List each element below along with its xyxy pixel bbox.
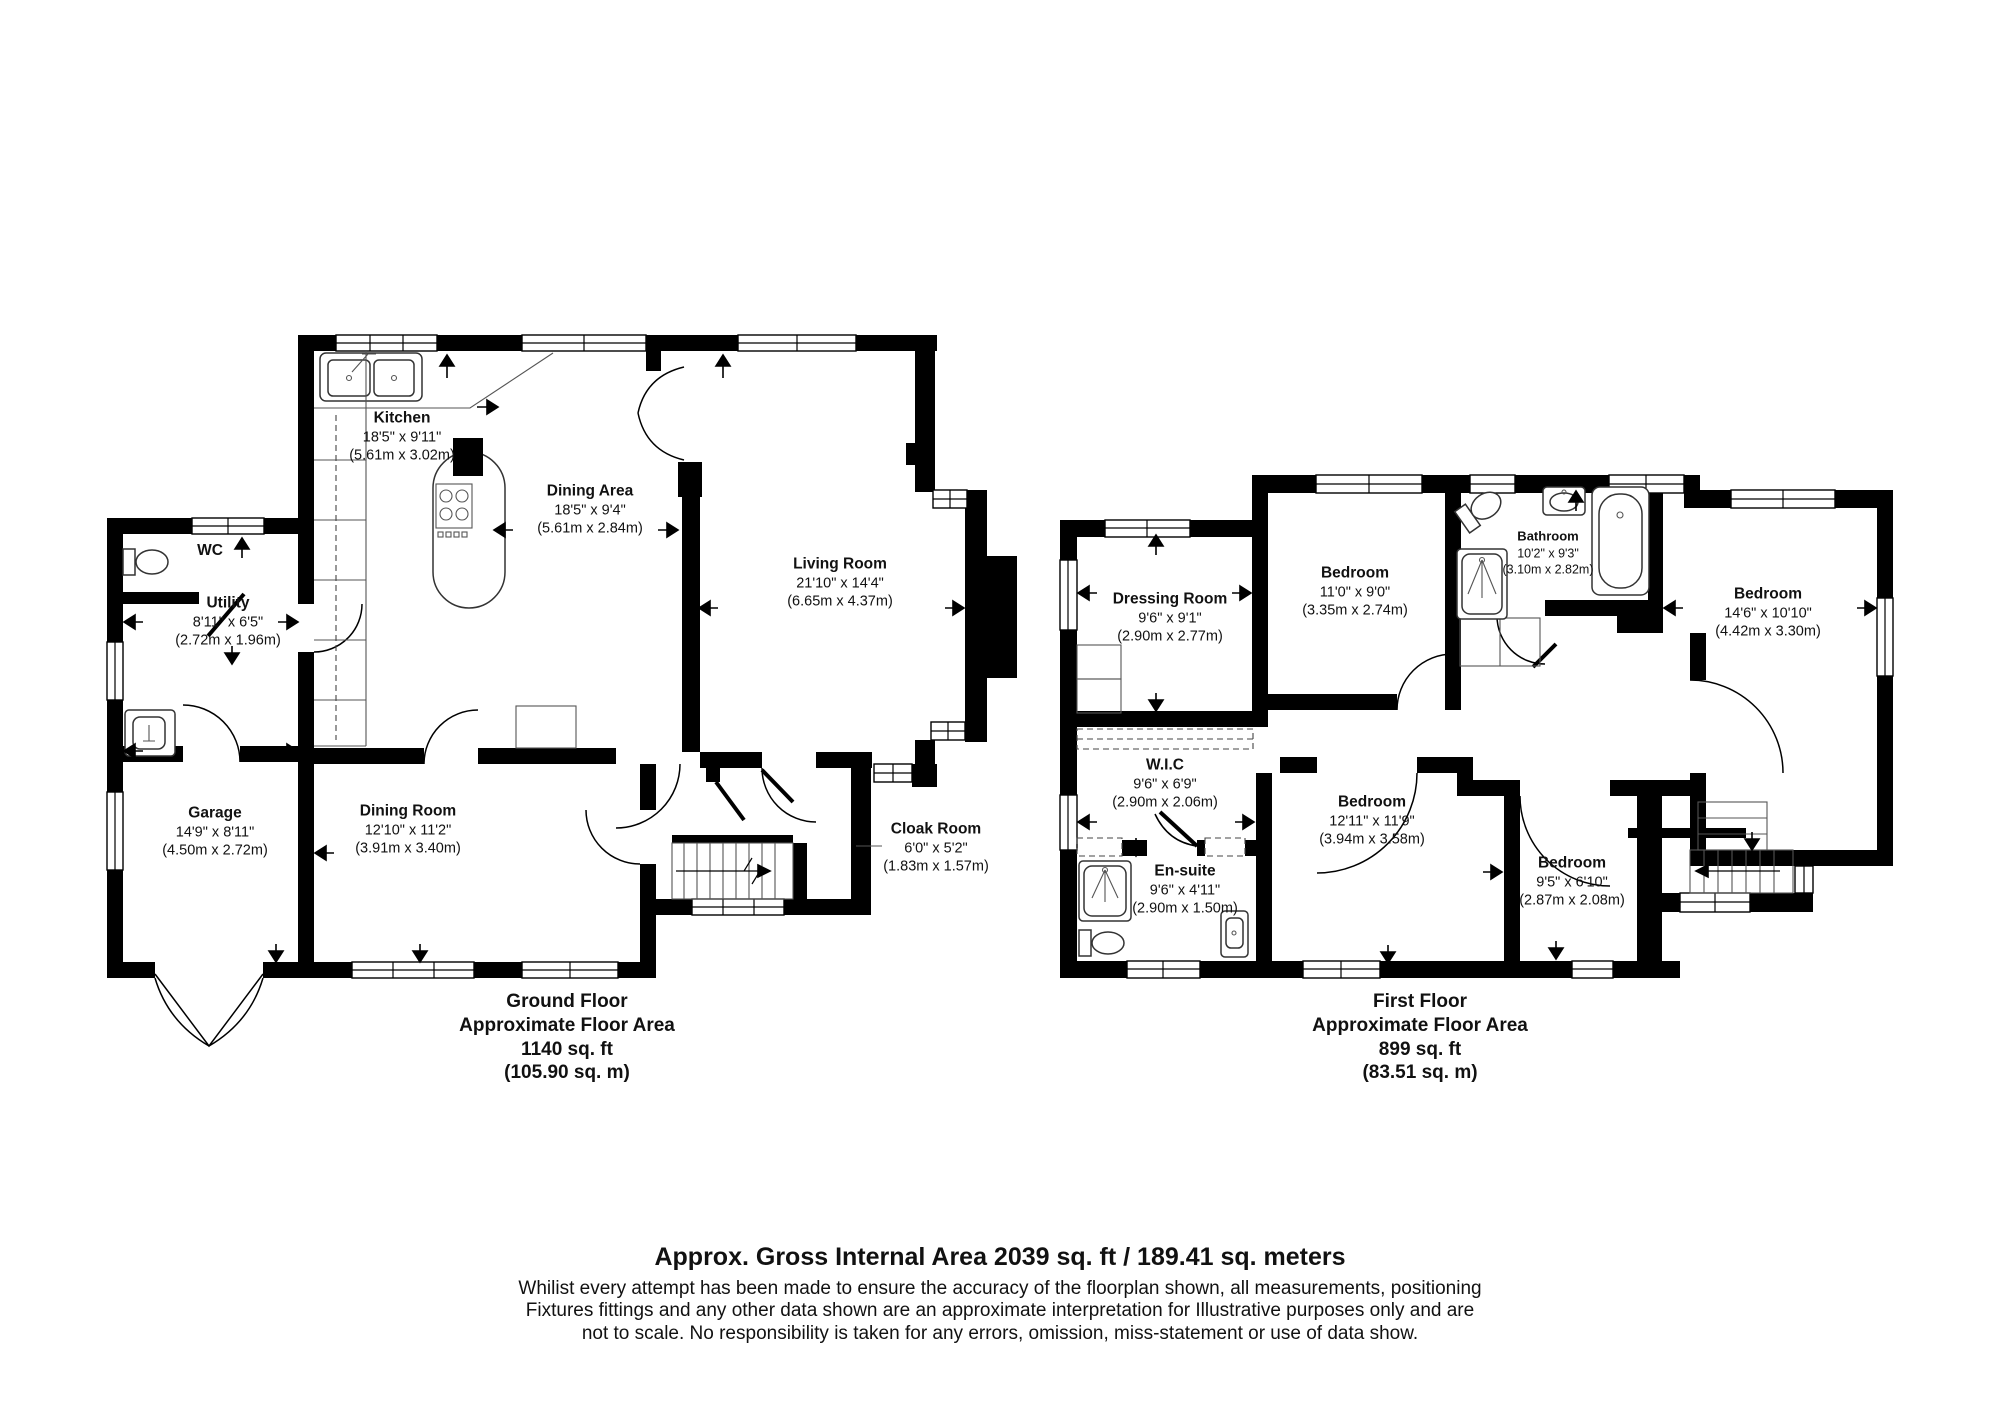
ground-floor-area-imperial: 1140 sq. ft — [459, 1038, 675, 1062]
wc-toilet-icon — [123, 549, 168, 575]
room-label-bedroom-2: Bedroom 14'6" x 10'10" (4.42m x 3.30m) — [1715, 585, 1821, 642]
first-floor-title: First Floor Approximate Floor Area 899 s… — [1312, 990, 1528, 1085]
floorplan-page: .b{fill:#000;} .w{fill:#fff;stroke:#000;… — [0, 0, 2000, 1413]
first-floor-subtitle: Approximate Floor Area — [1312, 1014, 1528, 1038]
ground-floor-title: Ground Floor Approximate Floor Area 1140… — [459, 990, 675, 1085]
room-label-kitchen: Kitchen 18'5" x 9'11" (5.61m x 3.02m) — [349, 409, 455, 466]
room-label-bedroom-4: Bedroom 9'5" x 6'10" (2.87m x 2.08m) — [1519, 854, 1625, 911]
room-label-utility: Utility 8'11" x 6'5" (2.72m x 1.96m) — [175, 594, 281, 651]
room-label-dining-room: Dining Room 12'10" x 11'2" (3.91m x 3.40… — [355, 802, 461, 859]
disclaimer-line-1: Whilist every attempt has been made to e… — [300, 1278, 1700, 1300]
ground-walls — [107, 335, 1017, 978]
first-floor-title-line: First Floor — [1312, 990, 1528, 1014]
kitchen-sink-icon — [320, 353, 422, 401]
footer-disclaimer: Approx. Gross Internal Area 2039 sq. ft … — [300, 1243, 1700, 1345]
room-label-living-room: Living Room 21'10" x 14'4" (6.65m x 4.37… — [787, 555, 893, 612]
room-label-garage: Garage 14'9" x 8'11" (4.50m x 2.72m) — [162, 804, 268, 861]
bathtub-icon — [1592, 487, 1649, 595]
room-label-bedroom-3: Bedroom 12'11" x 11'9" (3.94m x 3.58m) — [1319, 793, 1425, 850]
ground-floor-plan — [107, 335, 1017, 1046]
disclaimer-line-3: not to scale. No responsibility is taken… — [300, 1323, 1700, 1345]
ensuite-toilet-icon — [1079, 930, 1124, 956]
first-floor-area-imperial: 899 sq. ft — [1312, 1038, 1528, 1062]
ground-floor-subtitle: Approximate Floor Area — [459, 1014, 675, 1038]
room-label-en-suite: En-suite 9'6" x 4'11" (2.90m x 1.50m) — [1132, 862, 1238, 919]
gross-internal-area-headline: Approx. Gross Internal Area 2039 sq. ft … — [300, 1243, 1700, 1272]
ground-floor-area-metric: (105.90 sq. m) — [459, 1061, 675, 1085]
room-label-dining-area: Dining Area 18'5" x 9'4" (5.61m x 2.84m) — [537, 482, 643, 539]
floorplan-drawing: .b{fill:#000;} .w{fill:#fff;stroke:#000;… — [0, 0, 2000, 1413]
room-label-bathroom: Bathroom 10'2" x 9'3" (3.10m x 2.82m) — [1502, 529, 1593, 578]
ensuite-shower-icon — [1079, 861, 1131, 921]
disclaimer-line-2: Fixtures fittings and any other data sho… — [300, 1300, 1700, 1322]
room-label-cloak-room: Cloak Room 6'0" x 5'2" (1.83m x 1.57m) — [883, 820, 989, 877]
room-label-bedroom-1: Bedroom 11'0" x 9'0" (3.35m x 2.74m) — [1302, 564, 1408, 621]
ground-direction-arrows — [124, 355, 964, 962]
room-label-dressing-room: Dressing Room 9'6" x 9'1" (2.90m x 2.77m… — [1113, 590, 1228, 647]
ground-stairs-icon — [672, 835, 793, 899]
wardrobe-icons — [1077, 618, 1540, 856]
first-floor-area-metric: (83.51 sq. m) — [1312, 1061, 1528, 1085]
bathroom-shower-icon — [1457, 549, 1507, 619]
ground-floor-title-line: Ground Floor — [459, 990, 675, 1014]
room-label-wic: W.I.C 9'6" x 6'9" (2.90m x 2.06m) — [1112, 756, 1218, 813]
room-label-wc: WC — [197, 541, 223, 561]
